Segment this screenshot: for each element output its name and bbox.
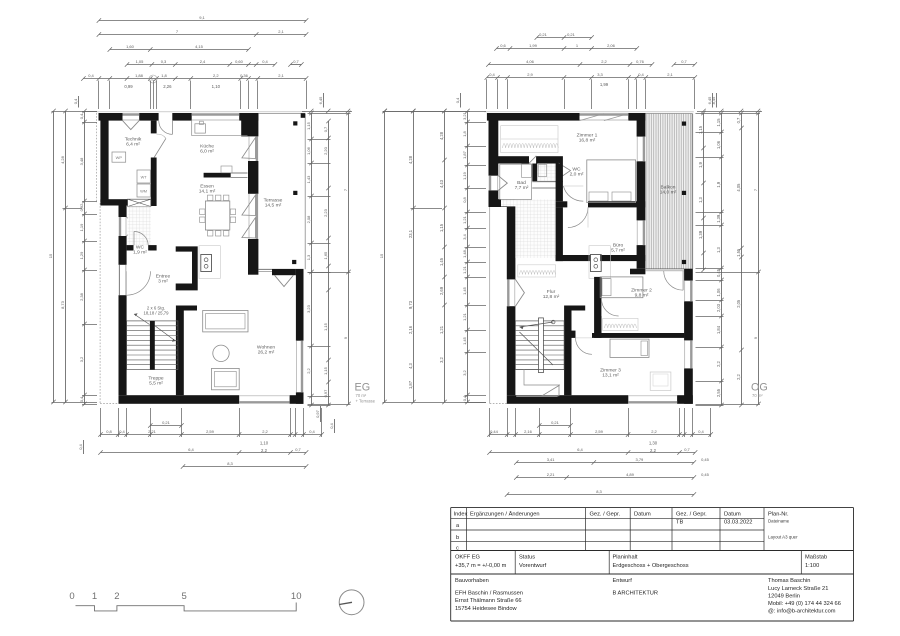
svg-text:1,84: 1,84 (716, 325, 721, 334)
svg-text:0,7: 0,7 (295, 447, 301, 452)
svg-text:1,15: 1,15 (306, 121, 311, 130)
svg-text:0,4: 0,4 (698, 429, 704, 434)
svg-text:B ARCHITEKTUR: B ARCHITEKTUR (613, 591, 659, 597)
svg-text:1,15: 1,15 (716, 118, 721, 127)
svg-text:1,45: 1,45 (462, 336, 467, 345)
svg-text:15: 15 (379, 253, 384, 258)
svg-text:2,21: 2,21 (148, 429, 157, 434)
svg-text:1,9: 1,9 (698, 161, 703, 167)
svg-text:1,87: 1,87 (462, 150, 467, 159)
svg-text:2,2: 2,2 (651, 429, 657, 434)
svg-text:1,45: 1,45 (462, 286, 467, 295)
svg-text:0,6: 0,6 (500, 43, 506, 48)
svg-text:1,87: 1,87 (408, 380, 413, 389)
svg-text:0,21: 0,21 (551, 420, 560, 425)
svg-text:2,4: 2,4 (200, 59, 206, 64)
svg-text:Status: Status (519, 555, 535, 561)
svg-text:Zimmer 3: Zimmer 3 (600, 367, 621, 373)
svg-text:18,18 / 25,79: 18,18 / 25,79 (143, 311, 169, 316)
svg-text:2,59: 2,59 (595, 429, 604, 434)
svg-text:Ernst Thälmann Straße 66: Ernst Thälmann Straße 66 (455, 598, 522, 604)
svg-text:3,79: 3,79 (636, 457, 645, 462)
svg-text:9,8 m²: 9,8 m² (635, 293, 649, 299)
svg-text:1,48: 1,48 (462, 249, 467, 258)
svg-text:OG: OG (751, 382, 768, 394)
svg-text:Zimmer 1: Zimmer 1 (577, 132, 598, 138)
svg-text:13,1 m²: 13,1 m² (602, 373, 619, 379)
svg-text:0,4: 0,4 (489, 72, 495, 77)
svg-text:+35,7 m = +/-0,00 m: +35,7 m = +/-0,00 m (455, 563, 507, 569)
svg-text:0,4: 0,4 (262, 59, 268, 64)
svg-text:03.03.2022: 03.03.2022 (724, 519, 752, 525)
svg-text:EG: EG (355, 382, 371, 394)
svg-text:2,26: 2,26 (163, 84, 172, 89)
svg-text:Ergänzungen / Änderungen: Ergänzungen / Änderungen (470, 510, 540, 517)
svg-text:3,2: 3,2 (79, 356, 84, 362)
svg-text:1,19: 1,19 (79, 223, 84, 232)
svg-text:1,55: 1,55 (736, 248, 741, 257)
svg-text:1,3: 1,3 (698, 196, 703, 202)
svg-text:Gez. / Gepr.: Gez. / Gepr. (590, 511, 621, 517)
svg-text:2,2: 2,2 (601, 59, 607, 64)
svg-text:1,60: 1,60 (126, 44, 135, 49)
svg-text:0,4: 0,4 (79, 396, 84, 402)
svg-text:10: 10 (291, 591, 302, 602)
svg-text:Lucy Larneck Straße 21: Lucy Larneck Straße 21 (768, 586, 828, 592)
svg-text:7,7 m²: 7,7 m² (515, 185, 529, 191)
svg-text:1,8: 1,8 (462, 130, 467, 136)
svg-text:1,43: 1,43 (306, 175, 311, 184)
svg-text:1,15: 1,15 (439, 223, 444, 232)
svg-text:0,7: 0,7 (684, 447, 690, 452)
svg-text:0,8: 0,8 (462, 196, 467, 202)
svg-text:0,8: 0,8 (106, 429, 112, 434)
svg-text:0,97: 0,97 (315, 409, 320, 418)
svg-text:0,92: 0,92 (79, 203, 84, 212)
svg-text:4,89: 4,89 (626, 472, 635, 477)
svg-text:Zimmer 2: Zimmer 2 (631, 287, 652, 293)
svg-text:0,4: 0,4 (78, 443, 83, 449)
svg-text:Balkon: Balkon (661, 184, 676, 190)
svg-text:1,39: 1,39 (698, 230, 703, 239)
svg-text:6,45: 6,45 (318, 96, 323, 105)
svg-text:2,2: 2,2 (306, 367, 311, 373)
svg-text:1,30: 1,30 (649, 441, 658, 446)
svg-text:Planinhalt: Planinhalt (613, 555, 638, 561)
svg-text:Flur: Flur (547, 289, 556, 295)
svg-text:0,4: 0,4 (455, 97, 460, 103)
svg-text:WC: WC (572, 166, 581, 172)
svg-text:1,19: 1,19 (462, 171, 467, 180)
svg-text:1,21: 1,21 (462, 312, 467, 321)
svg-text:5: 5 (181, 591, 186, 602)
svg-text:WT: WT (141, 175, 148, 180)
svg-text:12049 Berlin: 12049 Berlin (768, 593, 800, 599)
svg-text:Datum: Datum (634, 511, 651, 517)
svg-text:WM: WM (140, 189, 147, 194)
svg-text:2,2: 2,2 (262, 429, 268, 434)
svg-text:+ Terrasse: + Terrasse (356, 399, 376, 404)
svg-text:Büro: Büro (613, 242, 624, 248)
svg-text:Index: Index (454, 511, 468, 517)
svg-text:3,2: 3,2 (462, 369, 467, 375)
svg-text:2,59: 2,59 (206, 429, 215, 434)
svg-text:TB: TB (676, 519, 683, 525)
svg-text:15: 15 (48, 253, 53, 258)
svg-text:0,3: 0,3 (161, 59, 167, 64)
svg-text:Entree: Entree (156, 273, 171, 279)
svg-text:Plan-Nr.: Plan-Nr. (768, 511, 789, 517)
svg-text:4,28: 4,28 (408, 155, 413, 164)
svg-text:0,97: 0,97 (323, 389, 328, 398)
svg-text:Küche: Küche (200, 143, 214, 149)
svg-text:4,05: 4,05 (736, 183, 741, 192)
svg-text:1,15: 1,15 (323, 322, 328, 331)
svg-text:8,3: 8,3 (227, 461, 233, 466)
svg-text:0,7: 0,7 (293, 59, 299, 64)
svg-text:5,5 m²: 5,5 m² (149, 381, 163, 387)
svg-text:1,65: 1,65 (323, 251, 328, 260)
svg-text:WC: WC (136, 244, 145, 250)
svg-text:1,29: 1,29 (79, 251, 84, 260)
svg-text:2,2: 2,2 (650, 448, 657, 453)
svg-text:0,45: 0,45 (701, 472, 710, 477)
svg-text:15754 Heidesee Bindow: 15754 Heidesee Bindow (455, 606, 518, 612)
svg-text:2,2: 2,2 (716, 360, 721, 366)
svg-text:0,7: 0,7 (323, 126, 328, 132)
svg-text:6,4: 6,4 (577, 447, 583, 452)
svg-text:3,2: 3,2 (439, 356, 444, 362)
svg-text:Wohnen: Wohnen (257, 344, 275, 350)
svg-text:6,4 m²: 6,4 m² (126, 142, 140, 148)
svg-text:1,10: 1,10 (260, 441, 269, 446)
svg-text:Bauvorhaben: Bauvorhaben (455, 578, 489, 584)
svg-text:1,45: 1,45 (439, 257, 444, 266)
svg-text:Bad: Bad (517, 180, 526, 186)
svg-text:26,2 m²: 26,2 m² (258, 350, 275, 356)
svg-text:0,4: 0,4 (462, 395, 467, 401)
svg-text:2,06: 2,06 (607, 43, 616, 48)
svg-text:b: b (456, 535, 459, 541)
svg-text:2,55: 2,55 (716, 388, 721, 397)
svg-text:2,03: 2,03 (716, 303, 721, 312)
svg-text:2,05: 2,05 (736, 299, 741, 308)
svg-text:1,05: 1,05 (136, 59, 145, 64)
svg-text:4,3: 4,3 (408, 362, 413, 368)
svg-text:1,06: 1,06 (716, 140, 721, 149)
svg-text:Terrasse: Terrasse (264, 197, 283, 203)
svg-text:1,99: 1,99 (529, 43, 538, 48)
svg-text:2 x 6 Stg.: 2 x 6 Stg. (147, 305, 165, 310)
svg-text:3 m²: 3 m² (158, 279, 168, 285)
svg-text:1,3: 1,3 (306, 254, 311, 260)
svg-text:0,4: 0,4 (79, 113, 84, 119)
svg-text:0,99: 0,99 (124, 84, 133, 89)
svg-text:Gez. / Gepr.: Gez. / Gepr. (676, 511, 707, 517)
svg-text:1:100: 1:100 (805, 563, 819, 569)
svg-text:6,0 m²: 6,0 m² (200, 149, 214, 155)
svg-text:3,23: 3,23 (306, 304, 311, 313)
svg-text:1,3: 1,3 (716, 246, 721, 252)
svg-text:Vorentwurf: Vorentwurf (519, 563, 547, 569)
svg-text:4,28: 4,28 (60, 155, 65, 164)
svg-text:OKFF EG: OKFF EG (455, 555, 480, 561)
svg-text:3,4: 3,4 (462, 233, 467, 239)
svg-text:2,16: 2,16 (524, 429, 533, 434)
svg-text:0,7: 0,7 (736, 117, 741, 123)
svg-text:2,1: 2,1 (278, 29, 284, 34)
svg-text:70 m²: 70 m² (356, 393, 367, 398)
svg-text:0,4: 0,4 (73, 98, 78, 104)
svg-text:1,10: 1,10 (212, 84, 221, 89)
svg-text:0,21: 0,21 (162, 420, 171, 425)
svg-text:4,15: 4,15 (195, 44, 204, 49)
svg-text:2,2: 2,2 (213, 73, 219, 78)
svg-text:2,69: 2,69 (439, 286, 444, 295)
svg-text:70 m²: 70 m² (752, 393, 763, 398)
svg-text:8,73: 8,73 (60, 300, 65, 309)
svg-text:Datum: Datum (724, 511, 741, 517)
svg-text:2,1: 2,1 (667, 72, 673, 77)
svg-text:0,4: 0,4 (88, 73, 94, 78)
svg-text:16,8 m²: 16,8 m² (579, 138, 596, 144)
svg-text:2,38: 2,38 (79, 292, 84, 301)
svg-text:23,1: 23,1 (408, 229, 413, 238)
svg-text:1,9: 1,9 (716, 181, 721, 187)
svg-text:Dateiname: Dateiname (768, 519, 790, 524)
svg-text:1: 1 (92, 591, 97, 602)
svg-text:Thomas Baschin: Thomas Baschin (768, 578, 810, 584)
svg-text:14,0 m²: 14,0 m² (660, 190, 677, 196)
svg-text:2,9: 2,9 (527, 72, 533, 77)
svg-text:1,15: 1,15 (323, 366, 328, 375)
svg-text:0: 0 (69, 591, 74, 602)
svg-text:4,43: 4,43 (439, 179, 444, 188)
svg-text:0,4: 0,4 (119, 429, 125, 434)
svg-text:Entwurf: Entwurf (613, 578, 633, 584)
svg-text:2,1: 2,1 (278, 73, 284, 78)
svg-text:1,06: 1,06 (716, 288, 721, 297)
svg-text:1,39: 1,39 (716, 214, 721, 223)
svg-text:2,08: 2,08 (306, 215, 311, 224)
svg-text:2: 2 (114, 591, 119, 602)
svg-text:5,7 m²: 5,7 m² (611, 248, 625, 254)
svg-text:14,5 m²: 14,5 m² (265, 203, 282, 209)
svg-text:3,3: 3,3 (597, 72, 603, 77)
svg-text:1,8: 1,8 (161, 73, 167, 78)
svg-text:0,60: 0,60 (235, 59, 244, 64)
svg-text:0,45: 0,45 (701, 457, 710, 462)
svg-text:1,9 m²: 1,9 m² (133, 250, 147, 256)
svg-text:1,99: 1,99 (600, 82, 609, 87)
svg-text:9,1: 9,1 (199, 15, 205, 20)
svg-text:1,21: 1,21 (439, 325, 444, 334)
svg-text:2,0 m²: 2,0 m² (570, 172, 584, 178)
svg-text:2,16: 2,16 (408, 325, 413, 334)
svg-text:Essen: Essen (200, 183, 214, 189)
svg-text:@: info@b-architektur.com: @: info@b-architektur.com (768, 609, 836, 615)
svg-text:2,20: 2,20 (323, 146, 328, 155)
svg-text:Layout A3 quer: Layout A3 quer (768, 535, 798, 540)
svg-text:1,21: 1,21 (462, 265, 467, 274)
svg-text:3,21: 3,21 (462, 111, 467, 120)
svg-text:14,1 m²: 14,1 m² (199, 189, 216, 195)
svg-text:Treppe: Treppe (148, 375, 164, 381)
svg-text:8,3: 8,3 (596, 489, 602, 494)
svg-text:0,76: 0,76 (636, 59, 645, 64)
svg-text:4,06: 4,06 (526, 59, 535, 64)
svg-text:Mobil: +49 (0) 174 44 324 66: Mobil: +49 (0) 174 44 324 66 (768, 601, 841, 607)
svg-text:0,21: 0,21 (567, 32, 576, 37)
svg-text:0,4: 0,4 (309, 429, 315, 434)
svg-text:Maßstab: Maßstab (805, 555, 827, 561)
svg-text:9,73: 9,73 (408, 300, 413, 309)
svg-text:12,8 m²: 12,8 m² (543, 294, 560, 300)
svg-text:3,41: 3,41 (547, 457, 556, 462)
svg-text:Technik: Technik (125, 136, 142, 142)
svg-text:6,4: 6,4 (188, 447, 194, 452)
svg-text:0,4: 0,4 (638, 72, 644, 77)
svg-text:4,28: 4,28 (439, 131, 444, 140)
svg-text:2,23: 2,23 (323, 208, 328, 217)
svg-text:2,2: 2,2 (736, 373, 741, 379)
svg-text:2,21: 2,21 (547, 472, 556, 477)
svg-text:Erdgeschoss + Obergeschoss: Erdgeschoss + Obergeschoss (613, 563, 689, 569)
svg-text:WP: WP (116, 155, 123, 160)
svg-text:1,21: 1,21 (462, 215, 467, 224)
svg-text:c: c (456, 545, 459, 551)
svg-text:0,21: 0,21 (539, 32, 548, 37)
svg-text:1,06: 1,06 (306, 146, 311, 155)
svg-text:0,36: 0,36 (240, 73, 249, 78)
svg-text:EFH Baschin / Rasmussen: EFH Baschin / Rasmussen (455, 591, 523, 597)
svg-text:0,4: 0,4 (329, 422, 334, 428)
svg-text:1,88: 1,88 (135, 73, 144, 78)
svg-text:0,44: 0,44 (490, 429, 499, 434)
svg-text:2,2: 2,2 (261, 448, 268, 453)
svg-text:3,48: 3,48 (79, 157, 84, 166)
svg-text:8,45: 8,45 (711, 96, 716, 105)
svg-text:0,7: 0,7 (681, 59, 687, 64)
